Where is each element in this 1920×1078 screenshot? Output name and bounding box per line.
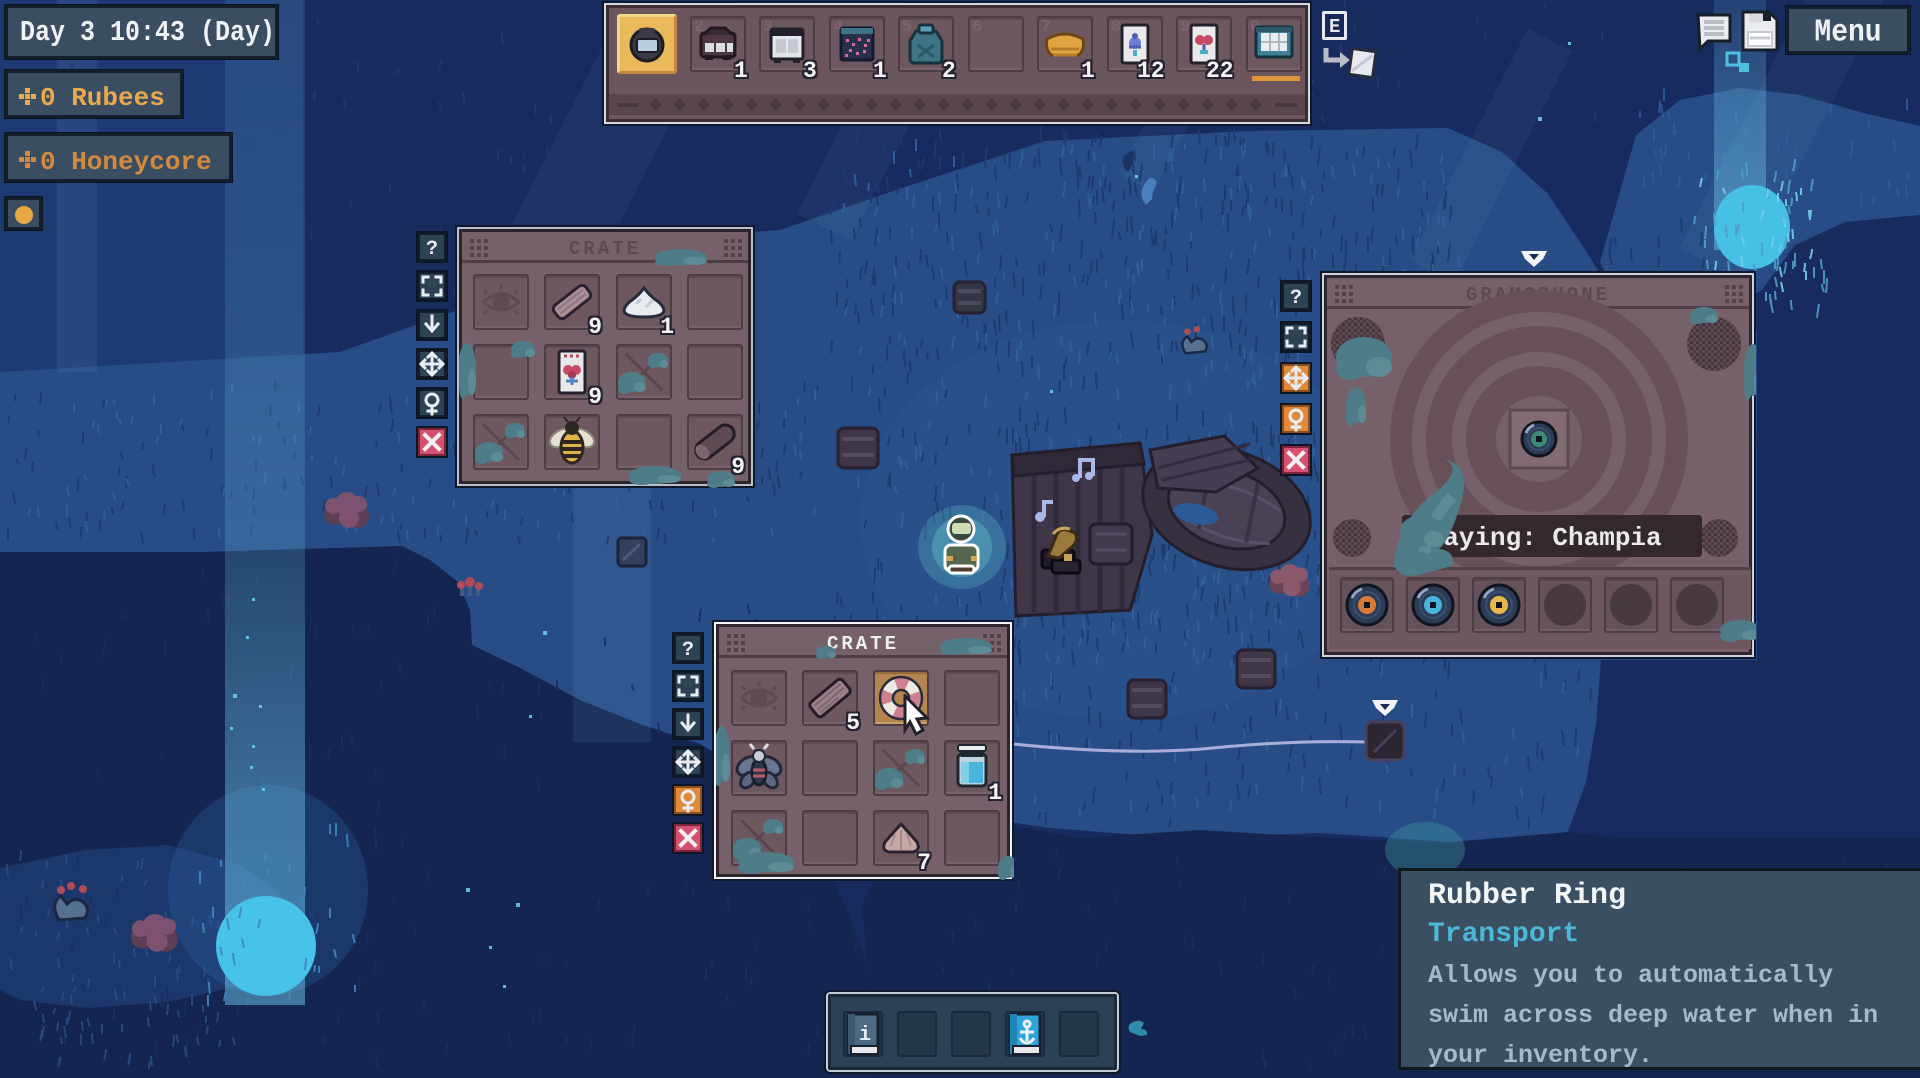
svg-text:?: ? xyxy=(682,639,694,662)
svg-text:?: ? xyxy=(426,238,438,261)
svg-text:?: ? xyxy=(1290,287,1302,310)
svg-text:i: i xyxy=(859,1024,871,1047)
